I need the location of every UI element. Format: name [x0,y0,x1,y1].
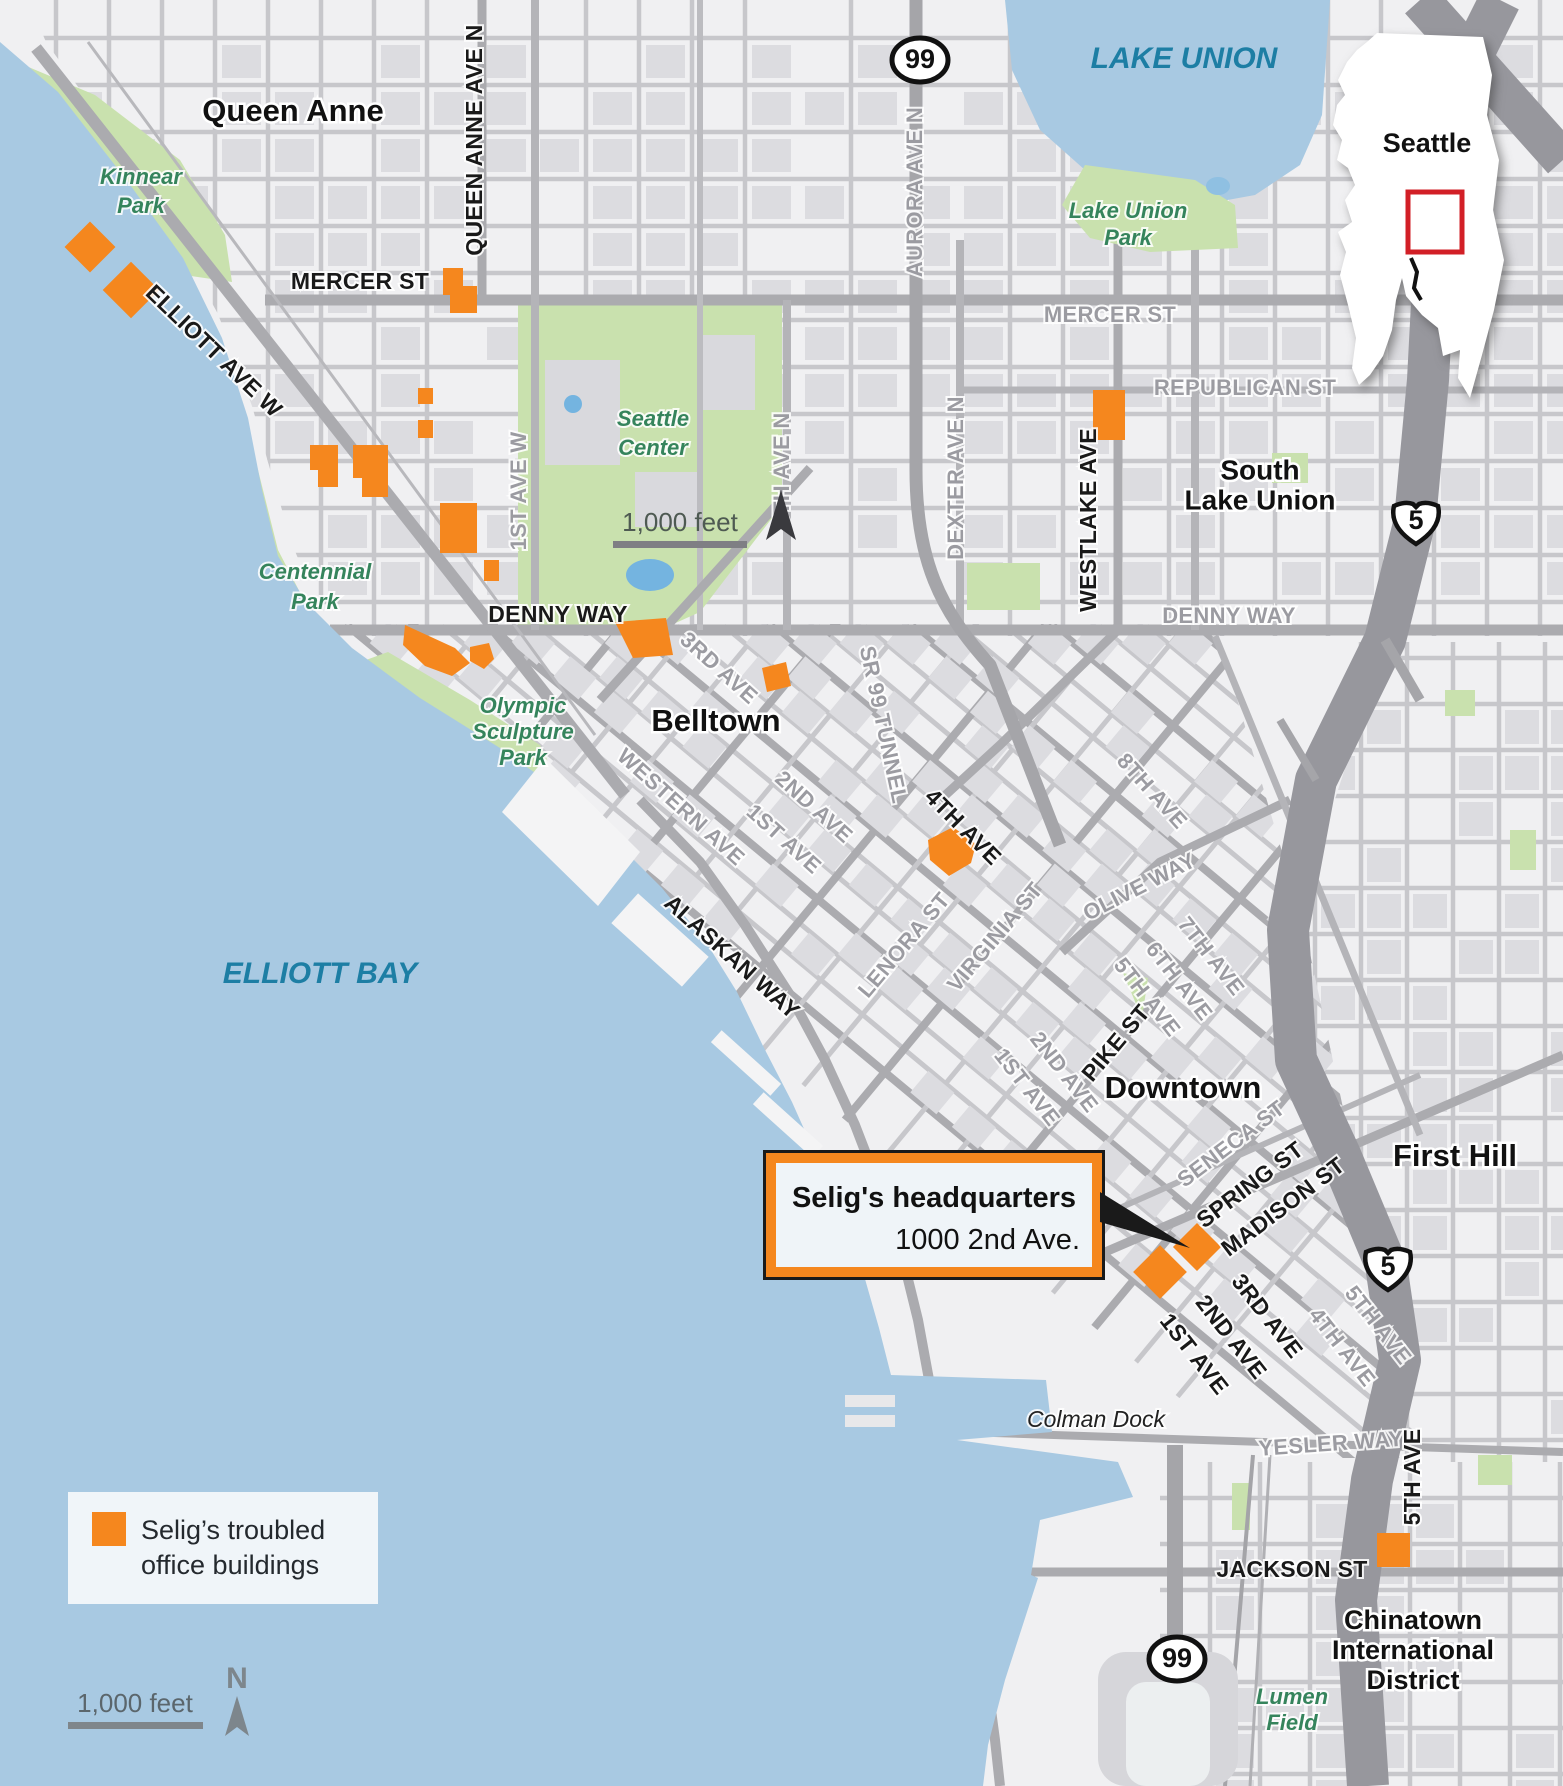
label-sc-2: Center [618,435,689,460]
svg-text:99: 99 [1162,1643,1192,1673]
label-jackson: JACKSON ST [1216,1556,1367,1582]
label-lumen-1: Lumen [1256,1684,1328,1709]
label-downtown: Downtown [1105,1070,1262,1105]
label-cen-2: Park [291,589,340,614]
label-queen-anne-ave: QUEEN ANNE AVE N [461,24,487,255]
label-cen-1: Centennial [259,559,372,584]
label-first-hill: First Hill [1393,1138,1517,1173]
legend-line1: Selig’s troubled [141,1515,325,1545]
compass-n-label: N [226,1662,248,1695]
legend-line2: office buildings [141,1550,319,1580]
label-lup-2: Park [1104,225,1153,250]
label-osp-1: Olympic [480,693,567,718]
label-fifth-s: 5TH AVE [1399,1429,1425,1526]
building-marker [418,420,433,438]
label-lup-1: Lake Union [1069,198,1188,223]
label-queen-anne: Queen Anne [202,93,383,128]
seattle-map: 999955Queen AnneBelltownDowntownFirst Hi… [0,0,1563,1786]
label-cid-2: International [1332,1635,1494,1665]
building-marker [1377,1533,1410,1567]
label-cid-1: Chinatown [1344,1605,1482,1635]
label-sc-1: Seattle [617,406,689,431]
scale-top-bar [613,541,747,548]
label-first-ave-w: 1ST AVE W [506,432,531,551]
label-osp-2: Sculpture [472,719,573,744]
label-mercer-w: MERCER ST [291,268,429,294]
label-slu-1: South [1220,454,1299,485]
label-mercer-e: MERCER ST [1044,302,1177,327]
map-figure: 999955Queen AnneBelltownDowntownFirst Hi… [0,0,1563,1786]
building-marker [440,503,477,553]
label-denny-e: DENNY WAY [1162,603,1296,628]
svg-text:5: 5 [1380,1251,1395,1281]
legend-box [68,1492,378,1604]
label-cid-3: District [1366,1665,1459,1695]
legend-marker-swatch [92,1512,126,1546]
callout-subtitle: 1000 2nd Ave. [895,1224,1080,1256]
label-westlake: WESTLAKE AVE [1075,428,1101,612]
highway-shield-99: 99 [892,38,948,82]
label-belltown: Belltown [651,703,780,738]
label-republican: REPUBLICAN ST [1154,375,1337,400]
callout-title: Selig's headquarters [792,1182,1076,1214]
building-marker [484,560,499,581]
scale-top-label: 1,000 feet [622,507,738,537]
building-marker [418,388,433,404]
label-aurora: AURORA AVE N [902,107,927,277]
scale-bottom-label: 1,000 feet [77,1688,193,1718]
label-dexter: DEXTER AVE N [943,396,968,560]
label-denny-w: DENNY WAY [488,601,627,627]
inset-city-label: Seattle [1383,128,1472,158]
label-elliott-bay: ELLIOTT BAY [223,957,420,990]
label-kinnear-2: Park [117,193,166,218]
label-kinnear-1: Kinnear [100,164,183,189]
scale-bottom-bar [68,1722,203,1729]
label-osp-3: Park [499,745,548,770]
legend: Selig’s troubled office buildings [68,1492,378,1604]
highway-shield-99: 99 [1149,1637,1205,1681]
label-slu-2: Lake Union [1185,484,1336,515]
label-lumen-2: Field [1266,1710,1318,1735]
label-lake-union: LAKE UNION [1091,42,1279,75]
label-colman-dock: Colman Dock [1027,1406,1167,1432]
svg-text:99: 99 [905,44,935,74]
svg-text:5: 5 [1408,505,1423,535]
